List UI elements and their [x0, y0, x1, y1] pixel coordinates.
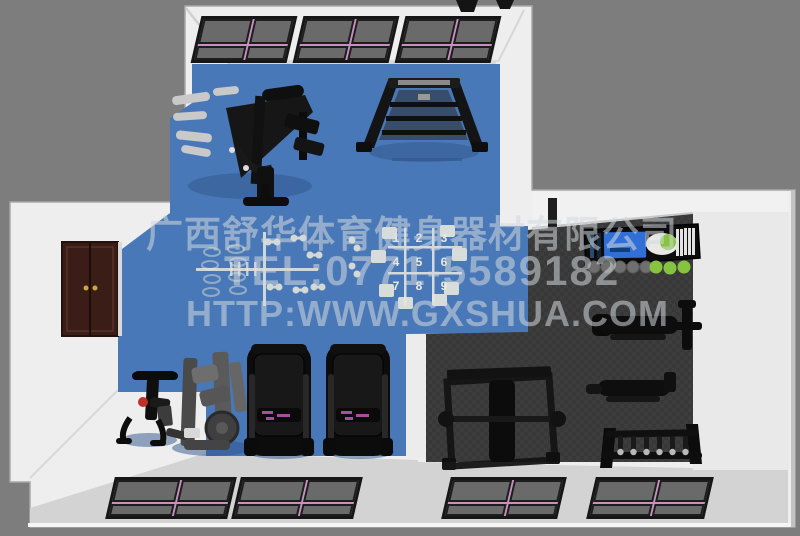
window-pane: [506, 504, 557, 516]
window-pane: [300, 19, 354, 44]
window-pane: [350, 19, 395, 44]
window-pane: [448, 480, 513, 502]
window-pane: [449, 46, 492, 60]
svg-text:6: 6: [441, 255, 448, 269]
svg-text:4: 4: [393, 255, 400, 269]
window-pane: [299, 504, 353, 516]
svg-text:9: 9: [441, 279, 448, 293]
svg-text:3: 3: [441, 231, 448, 245]
floor-plan-svg: 1 2 3 4 5 6 7 8 9: [0, 0, 800, 536]
right-white-floor: [693, 212, 789, 470]
window-pane: [445, 504, 507, 516]
window-pane: [509, 480, 563, 502]
treadmill-right: [323, 344, 393, 456]
window-top-3: [395, 16, 502, 63]
window-pane: [109, 504, 174, 516]
window-pane: [303, 480, 360, 502]
window-pane: [177, 480, 234, 502]
wall-door-slot: [548, 198, 557, 230]
window-pane: [235, 504, 300, 516]
window-pane: [347, 46, 390, 60]
svg-text:8: 8: [416, 279, 423, 293]
window-pane: [245, 46, 288, 60]
window-pane: [452, 19, 497, 44]
window-pane: [194, 46, 246, 60]
window-pane: [402, 19, 456, 44]
window-pane: [655, 480, 710, 502]
window-pane: [238, 480, 306, 502]
svg-text:1: 1: [393, 231, 400, 245]
svg-text:2: 2: [416, 231, 423, 245]
window-bottom-left-2: [231, 477, 363, 519]
window-pane: [590, 504, 653, 516]
window-bottom-right-1: [441, 477, 567, 519]
entry-door[interactable]: [62, 242, 122, 336]
svg-text:7: 7: [393, 279, 400, 293]
window-bottom-right-2: [586, 477, 714, 519]
window-top-2: [293, 16, 400, 63]
window-pane: [198, 19, 252, 44]
svg-text:5: 5: [416, 255, 423, 269]
treadmill-left: [244, 344, 314, 456]
window-pane: [398, 46, 450, 60]
window-pane: [112, 480, 180, 502]
gym-floor-plan-render: 1 2 3 4 5 6 7 8 9: [0, 0, 800, 536]
dumbbell-storage-rack: [584, 224, 700, 275]
window-bottom-left-1: [105, 477, 237, 519]
window-pane: [248, 19, 293, 44]
window-pane: [173, 504, 227, 516]
divider-wall: [406, 334, 426, 458]
window-pane: [593, 480, 659, 502]
window-top-1: [191, 16, 298, 63]
window-pane: [296, 46, 348, 60]
window-pane: [652, 504, 704, 516]
